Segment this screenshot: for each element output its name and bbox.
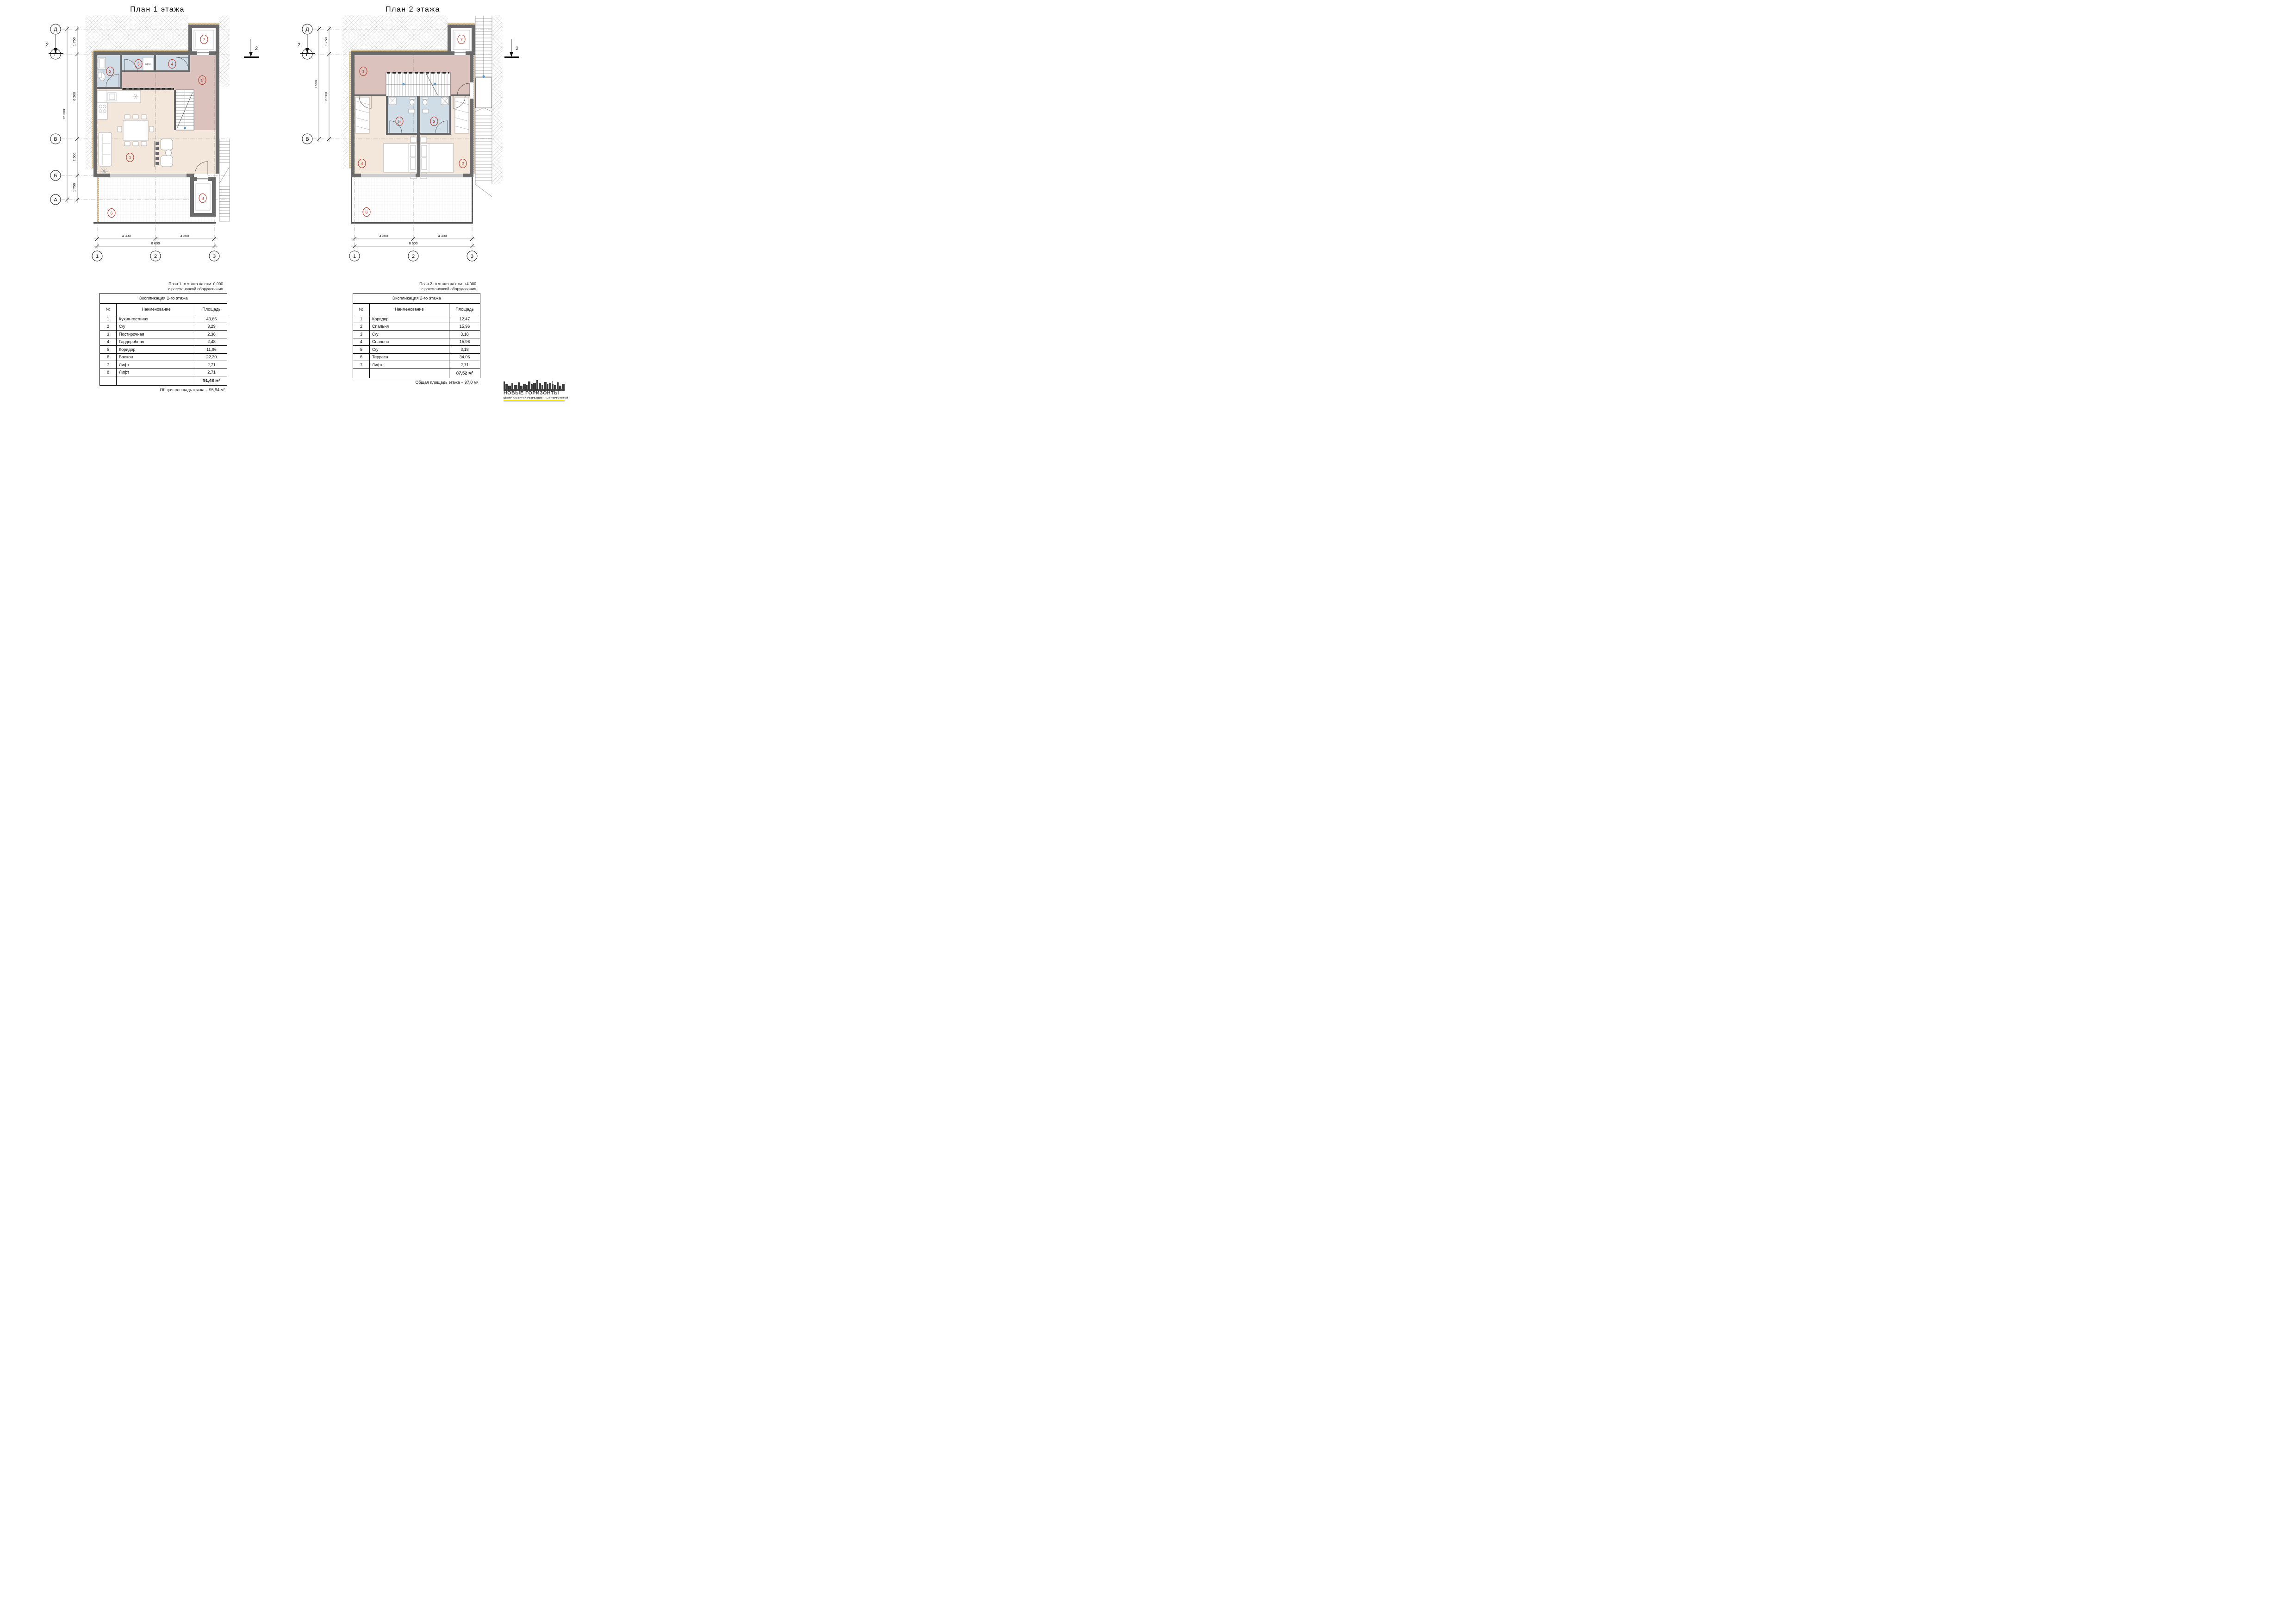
- cell-area: 2,71: [449, 361, 480, 369]
- balcony-railing: [93, 222, 216, 224]
- table-row: 3Постирочная2,38: [100, 331, 227, 338]
- cell-num: 6: [353, 353, 370, 361]
- cell-name: С/у: [370, 331, 449, 338]
- section-marker-right: 2: [244, 39, 259, 58]
- dim-text: 4 300: [438, 234, 447, 238]
- svg-text:1: 1: [129, 156, 131, 161]
- stair-dot: [434, 83, 436, 85]
- wall-partition-2-3: [120, 55, 122, 89]
- dim-text: 6 200: [324, 92, 328, 101]
- logo-underline: [504, 400, 565, 401]
- wall-corridor-bottom-right: [451, 94, 470, 96]
- cell-name: Спальня: [370, 338, 449, 346]
- exterior-stair: [475, 16, 492, 197]
- table1-caption: План 1-го этажа на отм. 0,000 с расстано…: [100, 281, 227, 292]
- explication-table-2-block: План 2-го этажа на отм. +4,080 с расстан…: [353, 281, 480, 385]
- dim-ticks-left: [65, 27, 79, 201]
- cell-name: Лифт: [117, 369, 196, 376]
- stair-dot: [403, 83, 404, 85]
- svg-text:3: 3: [471, 254, 473, 259]
- ground-hatch-top: [86, 16, 188, 51]
- wall-right: [216, 55, 219, 174]
- table2-title: Экспликация 2-го этажа: [353, 294, 480, 304]
- dim-text: 6 200: [72, 92, 76, 101]
- svg-text:3: 3: [213, 254, 216, 259]
- cell-num: 4: [353, 338, 370, 346]
- wall-bath-right: [449, 96, 451, 135]
- dim-text-total: 8 600: [409, 241, 418, 245]
- chair: [124, 115, 130, 119]
- table1-col-name: Наименование: [117, 304, 196, 315]
- table-total-row: 91,48 м²: [100, 376, 227, 386]
- svg-text:5: 5: [398, 119, 400, 125]
- wardrobe-right: [455, 97, 469, 133]
- terrace-floor: [352, 177, 472, 222]
- svg-text:7: 7: [460, 37, 462, 43]
- logo-underline-thin: [504, 401, 565, 402]
- pier-left: [351, 174, 361, 177]
- svg-text:2: 2: [412, 254, 415, 259]
- svg-text:4: 4: [361, 162, 363, 167]
- table1-caption-line2: с расстановкой оборудования: [100, 287, 223, 292]
- table2-col-name: Наименование: [370, 304, 449, 315]
- wall-stair-side: [174, 90, 176, 130]
- wall-rooms-bottom: [122, 70, 190, 72]
- insulation-right: [473, 55, 475, 174]
- svg-text:6: 6: [110, 211, 112, 216]
- kitchen-hob: [97, 103, 107, 119]
- cell-empty: [353, 369, 370, 378]
- table1-title: Экспликация 1-го этажа: [100, 294, 227, 304]
- chair: [118, 126, 122, 132]
- cell-name: Балкон: [117, 353, 196, 361]
- table-row: 5С/у3,18: [353, 346, 480, 354]
- svg-text:7: 7: [203, 37, 205, 43]
- ground-hatch-right: [492, 16, 502, 184]
- svg-text:6: 6: [365, 210, 367, 215]
- svg-text:2: 2: [109, 69, 111, 75]
- city-skyline-icon: [504, 380, 565, 391]
- wall-corridor-bottom-left: [355, 94, 386, 96]
- cell-name: Лифт: [370, 361, 449, 369]
- svg-text:3: 3: [433, 119, 435, 125]
- wall-right-lower: [470, 99, 473, 174]
- chair: [133, 142, 138, 146]
- insulation-top: [351, 50, 448, 51]
- cell-name: С/у: [370, 346, 449, 354]
- armchair: [161, 139, 173, 150]
- table1-caption-line1: План 1-го этажа на отм. 0,000: [100, 281, 223, 287]
- logo-name: НОВЫЕ ГОРИЗОНТЫ: [504, 390, 565, 396]
- table-row: 5Коридор11,96: [100, 346, 227, 354]
- dim-text-total: 7 950: [314, 80, 318, 89]
- cell-area: 15,96: [449, 338, 480, 346]
- cell-name: Гардеробная: [117, 338, 196, 346]
- table2-caption-line1: План 2-го этажа на отм. +4,080: [353, 281, 476, 287]
- dim-text-total: 8 600: [151, 241, 160, 245]
- cell-area: 34,06: [449, 353, 480, 361]
- cell-name: Кухня-гостиная: [117, 315, 196, 323]
- cell-num: 2: [100, 323, 117, 331]
- svg-text:Д: Д: [305, 27, 309, 32]
- svg-text:3: 3: [137, 62, 139, 67]
- axis-bubbles-cols: 1 2 3: [349, 251, 477, 261]
- dim-text: 1 750: [72, 183, 76, 192]
- cell-area: 15,96: [449, 323, 480, 331]
- cell-name: Коридор: [370, 315, 449, 323]
- svg-text:1: 1: [362, 69, 364, 75]
- table-row: 1Кухня-гостиная43,65: [100, 315, 227, 323]
- axis-bubbles-cols: 1 2 3: [92, 251, 219, 261]
- logo: НОВЫЕ ГОРИЗОНТЫ ЦЕНТР РАЗВИТИЯ РЕКРЕАЦИО…: [504, 380, 565, 402]
- table-row: 7Лифт2,71: [100, 361, 227, 369]
- cell-empty: [100, 376, 117, 386]
- cell-area: 12,47: [449, 315, 480, 323]
- cell-num: 7: [100, 361, 117, 369]
- table2-col-num: №: [353, 304, 370, 315]
- insulation-left: [349, 51, 351, 169]
- plant: [100, 168, 108, 175]
- table-row: 4Гардеробная2,48: [100, 338, 227, 346]
- cell-num: 5: [353, 346, 370, 354]
- table-row: 2Спальня15,96: [353, 323, 480, 331]
- chair: [141, 115, 147, 119]
- table-row: 7Лифт2,71: [353, 361, 480, 369]
- table-row: 6Терраса34,06: [353, 353, 480, 361]
- corridor-fill-right: [194, 90, 216, 130]
- cell-area: 3,18: [449, 346, 480, 354]
- terrace-rail-right: [472, 177, 473, 224]
- cell-num: 3: [100, 331, 117, 338]
- sofa: [99, 132, 112, 166]
- ground-hatch-top: [342, 16, 448, 51]
- dim-text: 4 300: [122, 234, 131, 238]
- cell-area: 11,96: [196, 346, 227, 354]
- wardrobe-left: [355, 97, 369, 133]
- table2-caption: План 2-го этажа на отм. +4,080 с расстан…: [353, 281, 480, 292]
- cell-area: 2,71: [196, 369, 227, 376]
- svg-text:Д: Д: [54, 27, 57, 32]
- table2-col-area: Площадь: [449, 304, 480, 315]
- insulation-top: [93, 50, 188, 51]
- table-row: 4Спальня15,96: [353, 338, 480, 346]
- section-marker-right: 2: [504, 39, 519, 58]
- svg-text:2: 2: [298, 42, 300, 48]
- pier-mid: [187, 174, 194, 177]
- terrace-rail-bottom: [351, 222, 473, 224]
- exit-door-gap: [470, 82, 473, 99]
- table2-caption-line2: с расстановкой оборудования: [353, 287, 476, 292]
- wall-left: [351, 55, 355, 177]
- wc-sink: [98, 57, 106, 69]
- wall-partition-3-4: [154, 55, 156, 72]
- cell-num: 5: [100, 346, 117, 354]
- pier-left: [93, 174, 110, 177]
- stair-start-dot: [184, 127, 186, 129]
- svg-text:2: 2: [46, 42, 49, 48]
- cell-num: 1: [100, 315, 117, 323]
- svg-text:5: 5: [201, 78, 203, 83]
- cell-num: 7: [353, 361, 370, 369]
- cell-name: С/у: [117, 323, 196, 331]
- chair: [141, 142, 147, 146]
- svg-text:1: 1: [353, 254, 356, 259]
- cell-num: 1: [353, 315, 370, 323]
- insulation-lift-top: [188, 23, 219, 25]
- svg-text:В: В: [54, 137, 57, 142]
- chair: [124, 142, 130, 146]
- terrace-rail-left: [351, 177, 352, 224]
- svg-text:1: 1: [96, 254, 99, 259]
- svg-text:А: А: [54, 197, 57, 203]
- table1-col-num: №: [100, 304, 117, 315]
- svg-text:2: 2: [255, 46, 258, 51]
- table1-total: 91,48 м²: [196, 376, 227, 386]
- table2-note: Общая площадь этажа – 97,0 м²: [353, 380, 480, 385]
- stair-landing: [476, 78, 492, 108]
- cell-area: 2,48: [196, 338, 227, 346]
- cell-area: 3,18: [449, 331, 480, 338]
- dim-text: 2 600: [72, 153, 76, 162]
- explication-table-1-block: План 1-го этажа на отм. 0,000 с расстано…: [100, 281, 227, 392]
- lift7-door-gap: [197, 51, 209, 55]
- cell-area: 22,30: [196, 353, 227, 361]
- cell-name: Коридор: [117, 346, 196, 354]
- chair: [133, 115, 138, 119]
- lift8-door-gap: [197, 177, 208, 181]
- armchair: [161, 156, 173, 167]
- floor-plan-2: 1 750 6 200 7 950 4 300 4 300 8 600 Д Г …: [287, 4, 528, 269]
- floor-plan-1: Ст.М.: [39, 4, 280, 269]
- cell-num: 3: [353, 331, 370, 338]
- table-row: 8Лифт2,71: [100, 369, 227, 376]
- cell-empty: [117, 376, 196, 386]
- wall-partition-4-5: [188, 55, 190, 72]
- ground-hatch-right: [219, 16, 230, 87]
- drawing-sheet: План 1 этажа План 2 этажа: [0, 0, 574, 406]
- chair: [149, 126, 154, 132]
- wall-bath-bottom: [386, 133, 451, 135]
- insulation-lift-top: [448, 23, 475, 25]
- table2-total: 87,52 м²: [449, 369, 480, 378]
- dim-text: 1 750: [324, 37, 328, 46]
- cell-empty: [370, 369, 449, 378]
- explication-table-1: Экспликация 1-го этажа № Наименование Пл…: [100, 293, 227, 386]
- dim-text: 1 750: [72, 37, 76, 46]
- insulation-left: [92, 51, 93, 169]
- cell-name: Постирочная: [117, 331, 196, 338]
- side-table: [166, 150, 172, 156]
- cell-name: Спальня: [370, 323, 449, 331]
- dim-text: 4 300: [180, 234, 189, 238]
- cell-area: 43,65: [196, 315, 227, 323]
- wall-wc-bottom: [97, 87, 122, 89]
- wc-toilet-tank: [98, 72, 101, 78]
- dining-table: [123, 120, 148, 141]
- exterior-stair: [219, 139, 230, 221]
- washing-machine-label: Ст.М.: [145, 63, 151, 66]
- svg-text:2: 2: [461, 162, 464, 167]
- wall-right-upper: [470, 55, 473, 82]
- table-row: 2С/у3,29: [100, 323, 227, 331]
- explication-table-2: Экспликация 2-го этажа № Наименование Пл…: [353, 293, 480, 378]
- table1-col-area: Площадь: [196, 304, 227, 315]
- svg-text:2: 2: [516, 46, 518, 51]
- table-total-row: 87,52 м²: [353, 369, 480, 378]
- svg-text:В: В: [305, 137, 309, 142]
- svg-text:8: 8: [201, 196, 204, 201]
- door-opening: [194, 174, 208, 177]
- cell-area: 2,38: [196, 331, 227, 338]
- pier-center: [416, 174, 420, 177]
- cell-num: 4: [100, 338, 117, 346]
- table1-note: Общая площадь этажа – 95,94 м²: [100, 387, 227, 392]
- cell-name: Лифт: [117, 361, 196, 369]
- cell-num: 2: [353, 323, 370, 331]
- cell-num: 8: [100, 369, 117, 376]
- wall-left: [93, 55, 97, 177]
- svg-text:Б: Б: [54, 173, 57, 179]
- cell-area: 3,29: [196, 323, 227, 331]
- table-row: 3С/у3,18: [353, 331, 480, 338]
- cell-area: 2,71: [196, 361, 227, 369]
- pier-right: [463, 174, 473, 177]
- corridor-fill-top: [190, 55, 216, 72]
- dim-text-total: 12 300: [62, 109, 66, 120]
- svg-text:2: 2: [154, 254, 157, 259]
- logo-tagline: ЦЕНТР РАЗВИТИЯ РЕКРЕАЦИОННЫХ ТЕРРИТОРИЙ: [504, 397, 565, 399]
- table-row: 6Балкон22,30: [100, 353, 227, 361]
- table-row: 1Коридор12,47: [353, 315, 480, 323]
- dim-text: 4 300: [380, 234, 388, 238]
- lift7-door-gap: [454, 51, 466, 55]
- wall-bath-left: [386, 96, 388, 135]
- svg-text:4: 4: [171, 62, 173, 67]
- cell-num: 6: [100, 353, 117, 361]
- cell-name: Терраса: [370, 353, 449, 361]
